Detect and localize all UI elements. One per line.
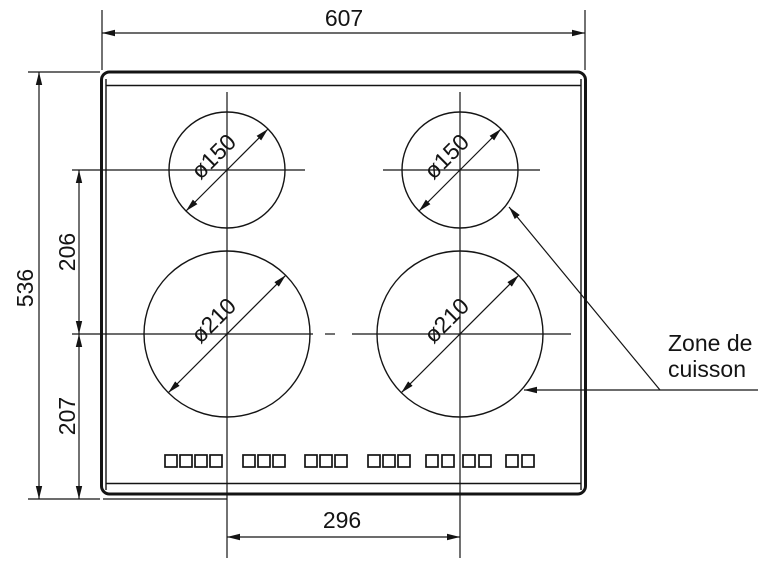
cooktop-outline (102, 72, 586, 494)
touch-control-squares (165, 455, 534, 467)
zone-centerlines (72, 92, 571, 558)
touch-control-square (506, 455, 518, 467)
cooktop-dimension-diagram: ø150 ø150 ø210 ø210 607 536 206 207 296 … (0, 0, 762, 564)
dimension-206: 206 (54, 170, 80, 334)
touch-control-square (273, 455, 285, 467)
zone-label-line1: Zone de (668, 330, 752, 356)
dim-296-label: 296 (323, 507, 361, 533)
touch-control-square (243, 455, 255, 467)
touch-control-square (398, 455, 410, 467)
touch-control-square (368, 455, 380, 467)
touch-control-square (426, 455, 438, 467)
dim-width-label: 607 (325, 5, 363, 31)
dim-207-label: 207 (54, 397, 80, 435)
touch-control-square (305, 455, 317, 467)
diagram-canvas: ø150 ø150 ø210 ø210 607 536 206 207 296 … (0, 0, 762, 564)
cooking-zones: ø150 ø150 ø210 ø210 (144, 112, 543, 417)
zone-diameter-label-bottom-right: ø210 (419, 293, 474, 348)
dim-206-label: 206 (54, 233, 80, 271)
zone-diameter-label-top-right: ø150 (419, 129, 474, 184)
touch-control-square (335, 455, 347, 467)
touch-control-square (479, 455, 491, 467)
touch-control-square (195, 455, 207, 467)
zone-diameter-label-bottom-left: ø210 (186, 293, 241, 348)
touch-control-square (463, 455, 475, 467)
touch-control-square (522, 455, 534, 467)
touch-control-square (442, 455, 454, 467)
dimension-width: 607 (102, 5, 585, 70)
touch-control-square (258, 455, 270, 467)
touch-control-square (165, 455, 177, 467)
dim-height-label: 536 (12, 269, 38, 307)
cooktop-body (102, 72, 586, 499)
dimension-296: 296 (227, 507, 460, 537)
touch-control-square (320, 455, 332, 467)
touch-control-square (180, 455, 192, 467)
touch-control-square (383, 455, 395, 467)
zone-label-leader: Zone de cuisson (509, 207, 758, 390)
zone-label-line2: cuisson (668, 356, 746, 382)
touch-control-square (210, 455, 222, 467)
dimension-207: 207 (54, 334, 80, 499)
zone-diameter-label-top-left: ø150 (186, 129, 241, 184)
